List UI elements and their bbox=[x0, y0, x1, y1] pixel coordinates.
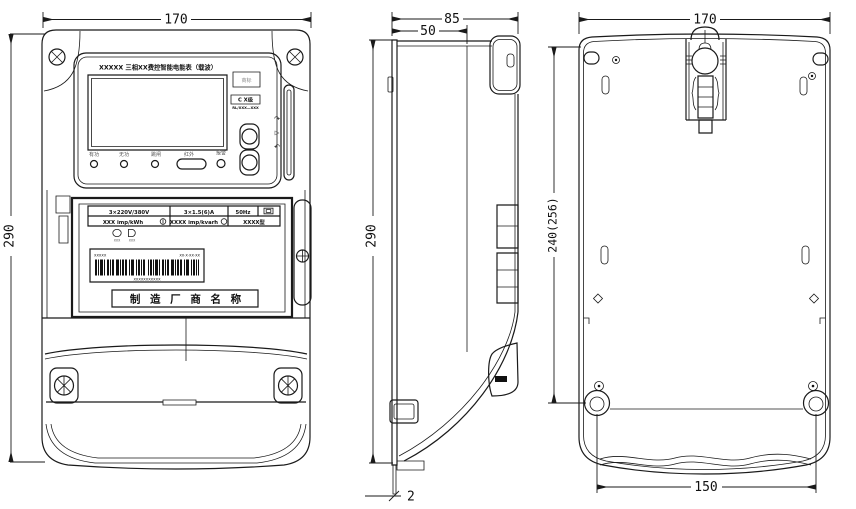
nameplate: 3×220V/380V 3×1.5(6)A 50Hz XXX imp/kWh X… bbox=[72, 198, 292, 317]
barcode-top-right-text: XX·X·XX·XX bbox=[179, 254, 200, 258]
dim-side-depth-label: 85 bbox=[444, 12, 460, 27]
reactive-pulse-icon bbox=[221, 219, 227, 225]
class-ii-insulation-icon bbox=[264, 208, 273, 214]
back-mount-hole-left bbox=[585, 382, 610, 416]
accuracy-class-label: C X级 bbox=[238, 96, 254, 104]
hanger-tab bbox=[699, 120, 712, 133]
dim-side-height: 290 bbox=[365, 40, 394, 463]
manufacturer-name: 制 造 厂 商 名 称 bbox=[130, 293, 244, 306]
lcd-display bbox=[88, 75, 227, 150]
rated-current: 3×1.5(6)A bbox=[184, 210, 215, 216]
side-cover-curve bbox=[404, 312, 518, 461]
card-eject-icon: ↶ bbox=[274, 143, 280, 151]
side-seal-cover bbox=[294, 200, 311, 305]
display-button-down bbox=[240, 150, 259, 175]
seal-label-left: XXX bbox=[114, 239, 121, 243]
trademark-label: 商标 bbox=[241, 77, 251, 84]
front-view: XXXXX 三相XX费控智能电能表（载波） 商标 C X级 RL/XXX—XXX… bbox=[42, 30, 311, 469]
card-direction-icon: ▷ bbox=[275, 130, 280, 137]
led-label-active: 有功 bbox=[89, 151, 99, 158]
alarm-led bbox=[217, 160, 225, 168]
led-label-infrared: 红外 bbox=[184, 151, 194, 158]
dim-back-width-label: 170 bbox=[693, 13, 716, 28]
side-view bbox=[388, 36, 520, 494]
back-serrated-edge bbox=[600, 454, 811, 460]
dim-back-mount-span-label: 150 bbox=[694, 480, 717, 495]
dim-side-front-depth-label: 50 bbox=[420, 24, 436, 39]
seal-mark-right bbox=[129, 229, 136, 236]
active-pulse-icon bbox=[160, 219, 166, 225]
barcode-block: XXXXX XX·X·XX·XX XXXXXXXXXXX bbox=[90, 249, 204, 282]
dim-back-mount-vertical-label: 240(256) bbox=[546, 197, 560, 252]
dim-side-base-offset-label: 2 bbox=[407, 490, 415, 505]
hanging-hole bbox=[692, 48, 718, 74]
back-slot bbox=[602, 76, 609, 94]
rated-frequency: 50Hz bbox=[236, 210, 251, 216]
dim-side-base-offset: 2 bbox=[365, 490, 415, 505]
dim-side-depth: 85 bbox=[392, 12, 518, 36]
seal-label-right: XXX bbox=[129, 239, 136, 243]
display-button-up bbox=[240, 124, 259, 149]
active-constant: XXX imp/kWh bbox=[103, 220, 144, 226]
dim-side-height-label: 290 bbox=[365, 224, 380, 247]
technical-drawing-page: XXXXX 三相XX费控智能电能表（载波） 商标 C X级 RL/XXX—XXX… bbox=[0, 0, 856, 509]
rated-voltage: 3×220V/380V bbox=[109, 210, 150, 216]
seal-mark-left bbox=[113, 229, 121, 236]
back-diamond-hole bbox=[594, 294, 603, 303]
dim-front-width: 170 bbox=[43, 12, 311, 28]
back-hanger-assembly bbox=[686, 27, 726, 133]
reactive-led bbox=[121, 161, 128, 168]
active-led bbox=[91, 161, 98, 168]
back-mount-hole-right bbox=[804, 382, 829, 416]
reactive-constant: XXXX imp/kvarh bbox=[170, 220, 218, 226]
terminal-cover bbox=[42, 318, 310, 463]
card-insert-icon: ↷ bbox=[274, 115, 280, 123]
barcode-number-text: XXXXXXXXXXX bbox=[133, 278, 161, 282]
back-slot bbox=[802, 246, 809, 264]
meter-model: XXXX型 bbox=[243, 218, 265, 226]
dim-back-mount-vertical: 240(256) bbox=[546, 47, 587, 403]
terminal-screw-left-icon bbox=[55, 376, 74, 395]
led-label-trip: 跳闸 bbox=[151, 151, 161, 158]
dim-back-width: 170 bbox=[579, 12, 830, 34]
dim-front-height: 290 bbox=[3, 34, 46, 462]
back-hole-top-left bbox=[584, 52, 599, 64]
left-hinge bbox=[56, 196, 70, 213]
top-right-screw-icon bbox=[287, 49, 303, 65]
dimensions: 170 290 85 50 bbox=[3, 12, 831, 505]
standard-code-label: RL/XXX—XXX bbox=[232, 106, 259, 110]
side-mounting-hook bbox=[390, 400, 418, 423]
back-diamond-hole bbox=[810, 294, 819, 303]
front-panel bbox=[74, 53, 281, 188]
back-slot bbox=[800, 77, 807, 95]
meter-dimension-drawing: XXXXX 三相XX费控智能电能表（载波） 商标 C X级 RL/XXX—XXX… bbox=[0, 0, 856, 509]
back-slot bbox=[601, 246, 608, 264]
side-back-plate bbox=[392, 40, 397, 465]
card-slot bbox=[284, 85, 294, 180]
dim-front-height-label: 290 bbox=[3, 224, 18, 247]
barcode-top-left-text: XXXXX bbox=[94, 254, 107, 258]
dim-front-width-label: 170 bbox=[164, 13, 187, 28]
terminal-screw-right-icon bbox=[279, 376, 298, 395]
led-label-alarm: 报警 bbox=[216, 150, 226, 157]
back-body-outline bbox=[579, 34, 830, 474]
back-view bbox=[579, 27, 830, 474]
led-label-reactive: 无功 bbox=[119, 151, 129, 158]
top-left-screw-icon bbox=[49, 49, 65, 65]
meter-title: XXXXX 三相XX费控智能电能表（载波） bbox=[99, 63, 217, 72]
trip-led bbox=[152, 161, 159, 168]
infrared-window bbox=[177, 159, 206, 169]
side-hanger-bracket bbox=[490, 36, 520, 94]
